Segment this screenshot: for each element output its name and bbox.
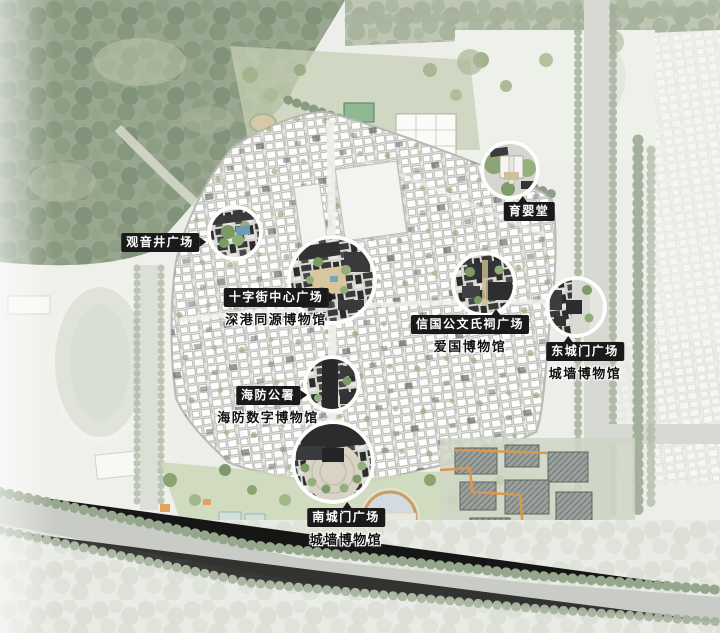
west-road xyxy=(140,265,158,510)
large-building xyxy=(335,161,406,241)
site-plan-map: 观音井广场 育婴堂 十字街中心广场 深港同源博物馆 信国公文氏祠广场 爱国博物馆… xyxy=(0,0,720,633)
map-canvas xyxy=(0,0,720,633)
south-gate xyxy=(322,448,344,462)
callout-yuyingtang xyxy=(480,140,540,200)
edge-fade xyxy=(0,0,55,633)
pond-pier xyxy=(362,513,416,521)
east-gate xyxy=(566,300,582,314)
